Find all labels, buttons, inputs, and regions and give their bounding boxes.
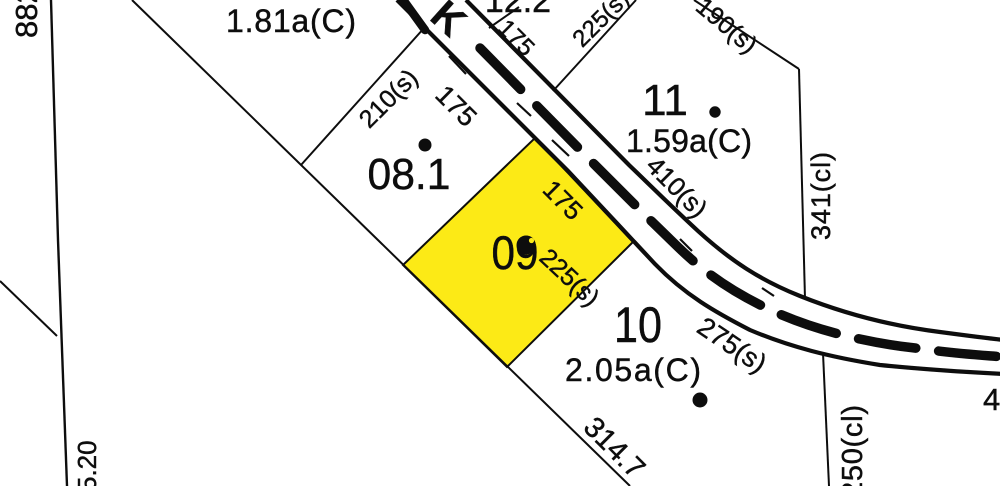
svg-text:11: 11 [642,76,688,125]
svg-text:12.2: 12.2 [485,0,551,20]
svg-text:2.05a(C): 2.05a(C) [565,352,701,388]
svg-text:41: 41 [983,382,1000,417]
svg-text:1.59a(C): 1.59a(C) [626,123,752,159]
svg-text:1.81a(C): 1.81a(C) [226,3,356,39]
svg-text:882: 882 [9,0,44,38]
svg-text:08.1: 08.1 [368,150,451,199]
svg-text:341(cl): 341(cl) [806,152,836,240]
svg-text:5.20: 5.20 [72,440,102,486]
svg-text:250(cl): 250(cl) [837,405,869,486]
svg-text:10: 10 [614,297,662,353]
